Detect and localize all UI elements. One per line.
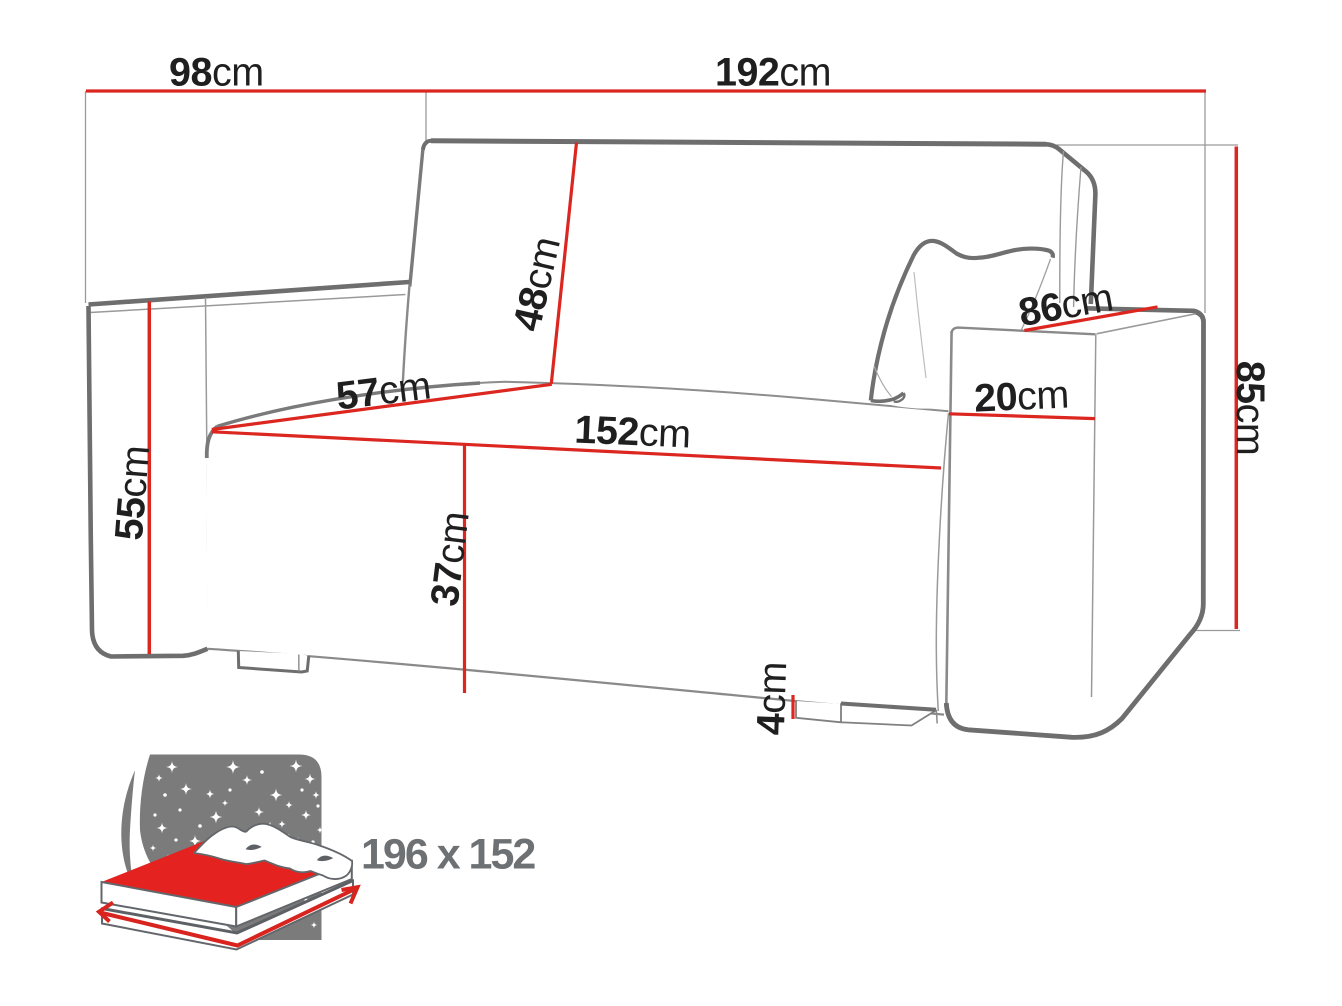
svg-text:20cm: 20cm — [973, 372, 1069, 420]
svg-text:85cm: 85cm — [1228, 361, 1272, 456]
svg-text:196 x 152: 196 x 152 — [361, 831, 535, 879]
svg-text:4cm: 4cm — [749, 661, 796, 736]
svg-text:192cm: 192cm — [715, 51, 831, 95]
svg-text:55cm: 55cm — [107, 444, 158, 542]
svg-text:98cm: 98cm — [169, 51, 264, 95]
svg-text:152cm: 152cm — [574, 408, 692, 457]
